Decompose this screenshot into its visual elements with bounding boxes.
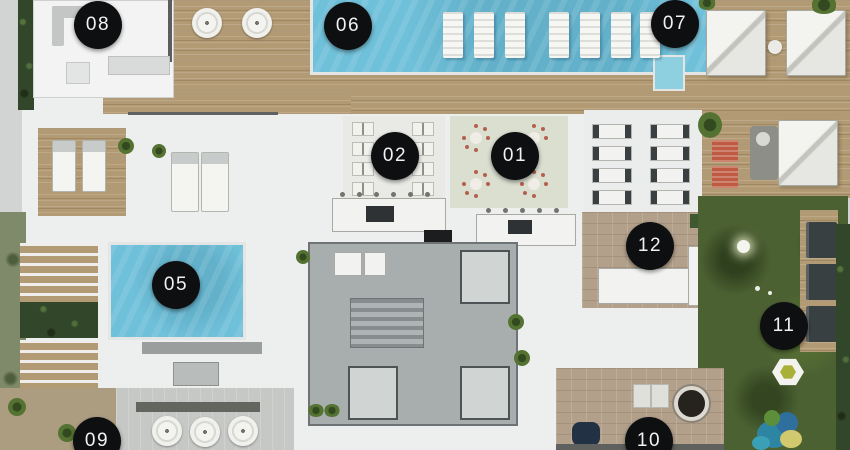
- marker-06[interactable]: 06: [324, 2, 372, 50]
- marker-01[interactable]: 01: [491, 132, 539, 180]
- marker-07[interactable]: 07: [651, 0, 699, 48]
- marker-12[interactable]: 12: [626, 222, 674, 270]
- marker-10[interactable]: 10: [625, 417, 673, 450]
- marker-11[interactable]: 11: [760, 302, 808, 350]
- marker-02[interactable]: 02: [371, 132, 419, 180]
- markers-layer: 08060702011205110910: [0, 0, 850, 450]
- marker-05[interactable]: 05: [152, 261, 200, 309]
- site-plan: 08060702011205110910: [0, 0, 850, 450]
- marker-08[interactable]: 08: [74, 1, 122, 49]
- marker-09[interactable]: 09: [73, 417, 121, 450]
